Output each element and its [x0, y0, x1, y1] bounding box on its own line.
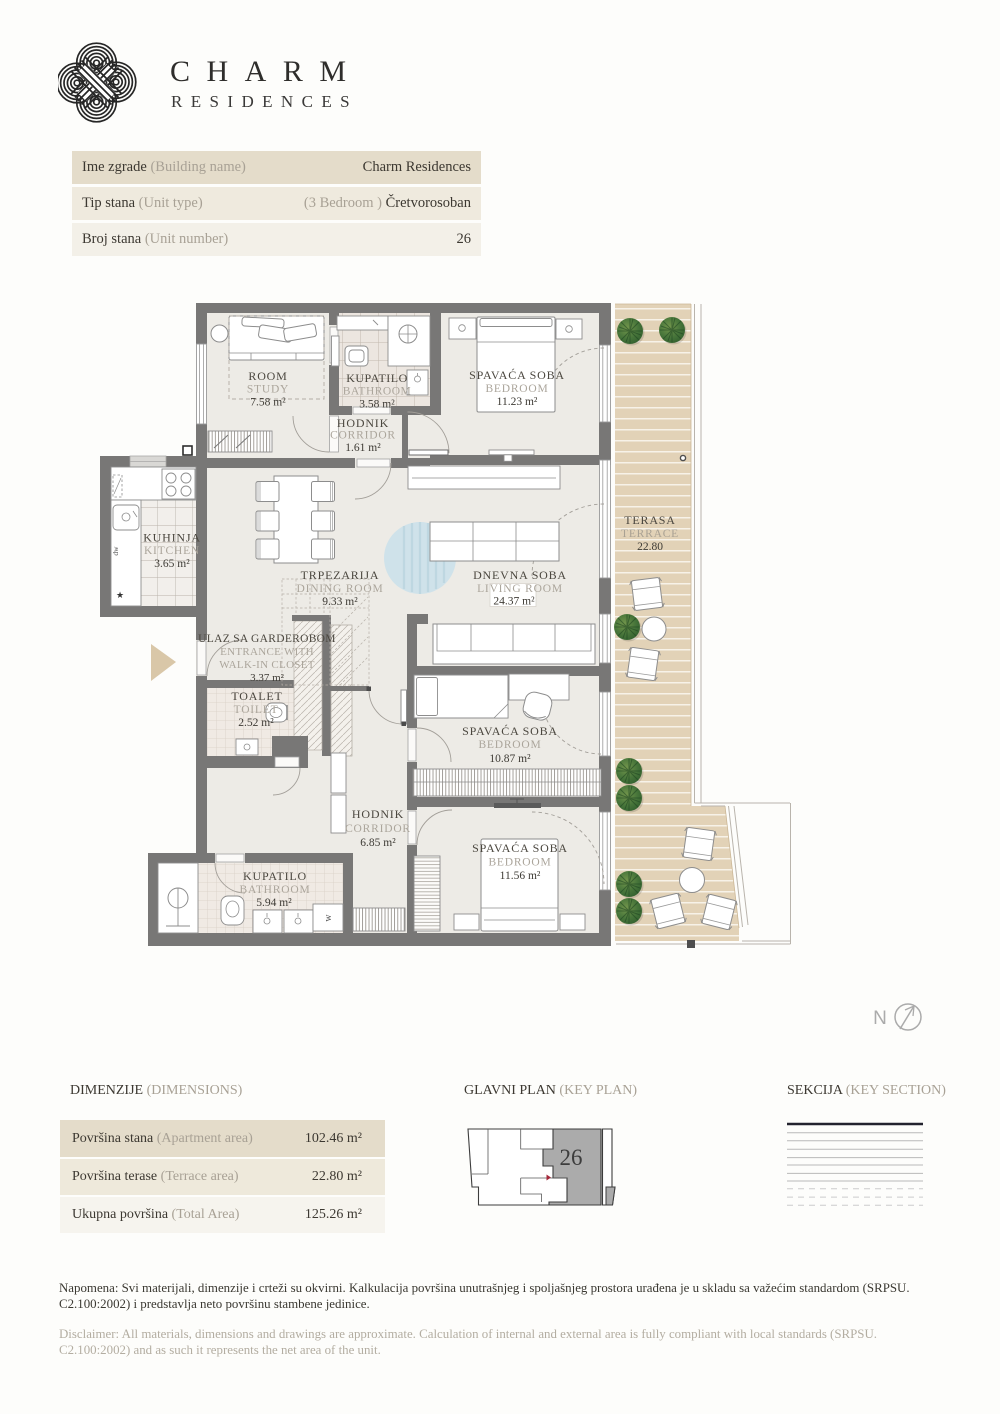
svg-text:SPAVAĆA SOBA: SPAVAĆA SOBA	[462, 724, 558, 738]
svg-text:LIVING ROOM: LIVING ROOM	[477, 583, 563, 595]
svg-text:24.37 m²: 24.37 m²	[493, 596, 535, 608]
svg-text:DINING ROOM: DINING ROOM	[296, 583, 383, 595]
svg-text:26: 26	[560, 1145, 583, 1170]
svg-text:11.23 m²: 11.23 m²	[497, 396, 538, 408]
svg-text:KITCHEN: KITCHEN	[144, 545, 200, 557]
svg-text:★: ★	[116, 590, 124, 600]
svg-text:TOALET: TOALET	[231, 689, 282, 703]
svg-text:1.61 m²: 1.61 m²	[345, 442, 381, 454]
svg-text:BEDROOM: BEDROOM	[488, 857, 551, 869]
svg-text:HODNIK: HODNIK	[352, 807, 404, 821]
svg-text:SPAVAĆA SOBA: SPAVAĆA SOBA	[469, 368, 565, 382]
svg-text:SPAVAĆA SOBA: SPAVAĆA SOBA	[472, 841, 568, 855]
svg-text:10.87 m²: 10.87 m²	[489, 753, 531, 765]
svg-text:DNEVNA SOBA: DNEVNA SOBA	[473, 568, 567, 582]
svg-text:22.80: 22.80	[637, 541, 663, 553]
svg-text:w: w	[323, 914, 334, 922]
svg-text:9.33 m²: 9.33 m²	[322, 596, 358, 608]
svg-text:BATHROOM: BATHROOM	[343, 386, 412, 398]
svg-text:N: N	[873, 1008, 887, 1029]
svg-text:ULAZ SA GARDEROBOM: ULAZ SA GARDEROBOM	[198, 633, 336, 645]
svg-text:HODNIK: HODNIK	[337, 416, 389, 430]
svg-text:CORRIDOR: CORRIDOR	[345, 823, 411, 835]
svg-text:WALK-IN CLOSET: WALK-IN CLOSET	[219, 659, 315, 671]
svg-text:TRPEZARIJA: TRPEZARIJA	[301, 568, 380, 582]
svg-text:TERRACE: TERRACE	[621, 528, 679, 540]
svg-text:5.94 m²: 5.94 m²	[256, 897, 292, 909]
svg-text:KUPATILO: KUPATILO	[346, 371, 408, 385]
svg-text:ROOM: ROOM	[248, 369, 287, 383]
svg-text:TOILET: TOILET	[234, 704, 279, 716]
svg-text:3.58 m²: 3.58 m²	[359, 399, 395, 411]
svg-text:3.65 m²: 3.65 m²	[154, 558, 190, 570]
svg-text:KUPATILO: KUPATILO	[243, 869, 307, 883]
svg-text:STUDY: STUDY	[247, 384, 289, 396]
svg-text:CORRIDOR: CORRIDOR	[330, 430, 396, 442]
svg-text:11.56 m²: 11.56 m²	[500, 870, 541, 882]
svg-text:3.37 m²: 3.37 m²	[250, 672, 285, 684]
svg-text:TERASA: TERASA	[624, 513, 675, 527]
svg-text:ENTRANCE WITH: ENTRANCE WITH	[220, 646, 314, 658]
svg-text:7.58 m²: 7.58 m²	[250, 397, 286, 409]
svg-text:dw: dw	[111, 546, 120, 556]
svg-text:6.85 m²: 6.85 m²	[360, 837, 396, 849]
svg-text:2.52 m²: 2.52 m²	[238, 717, 274, 729]
svg-text:BEDROOM: BEDROOM	[478, 739, 541, 751]
svg-text:BEDROOM: BEDROOM	[485, 383, 548, 395]
svg-text:KUHINJA: KUHINJA	[143, 531, 201, 545]
svg-text:BATHROOM: BATHROOM	[240, 884, 311, 896]
